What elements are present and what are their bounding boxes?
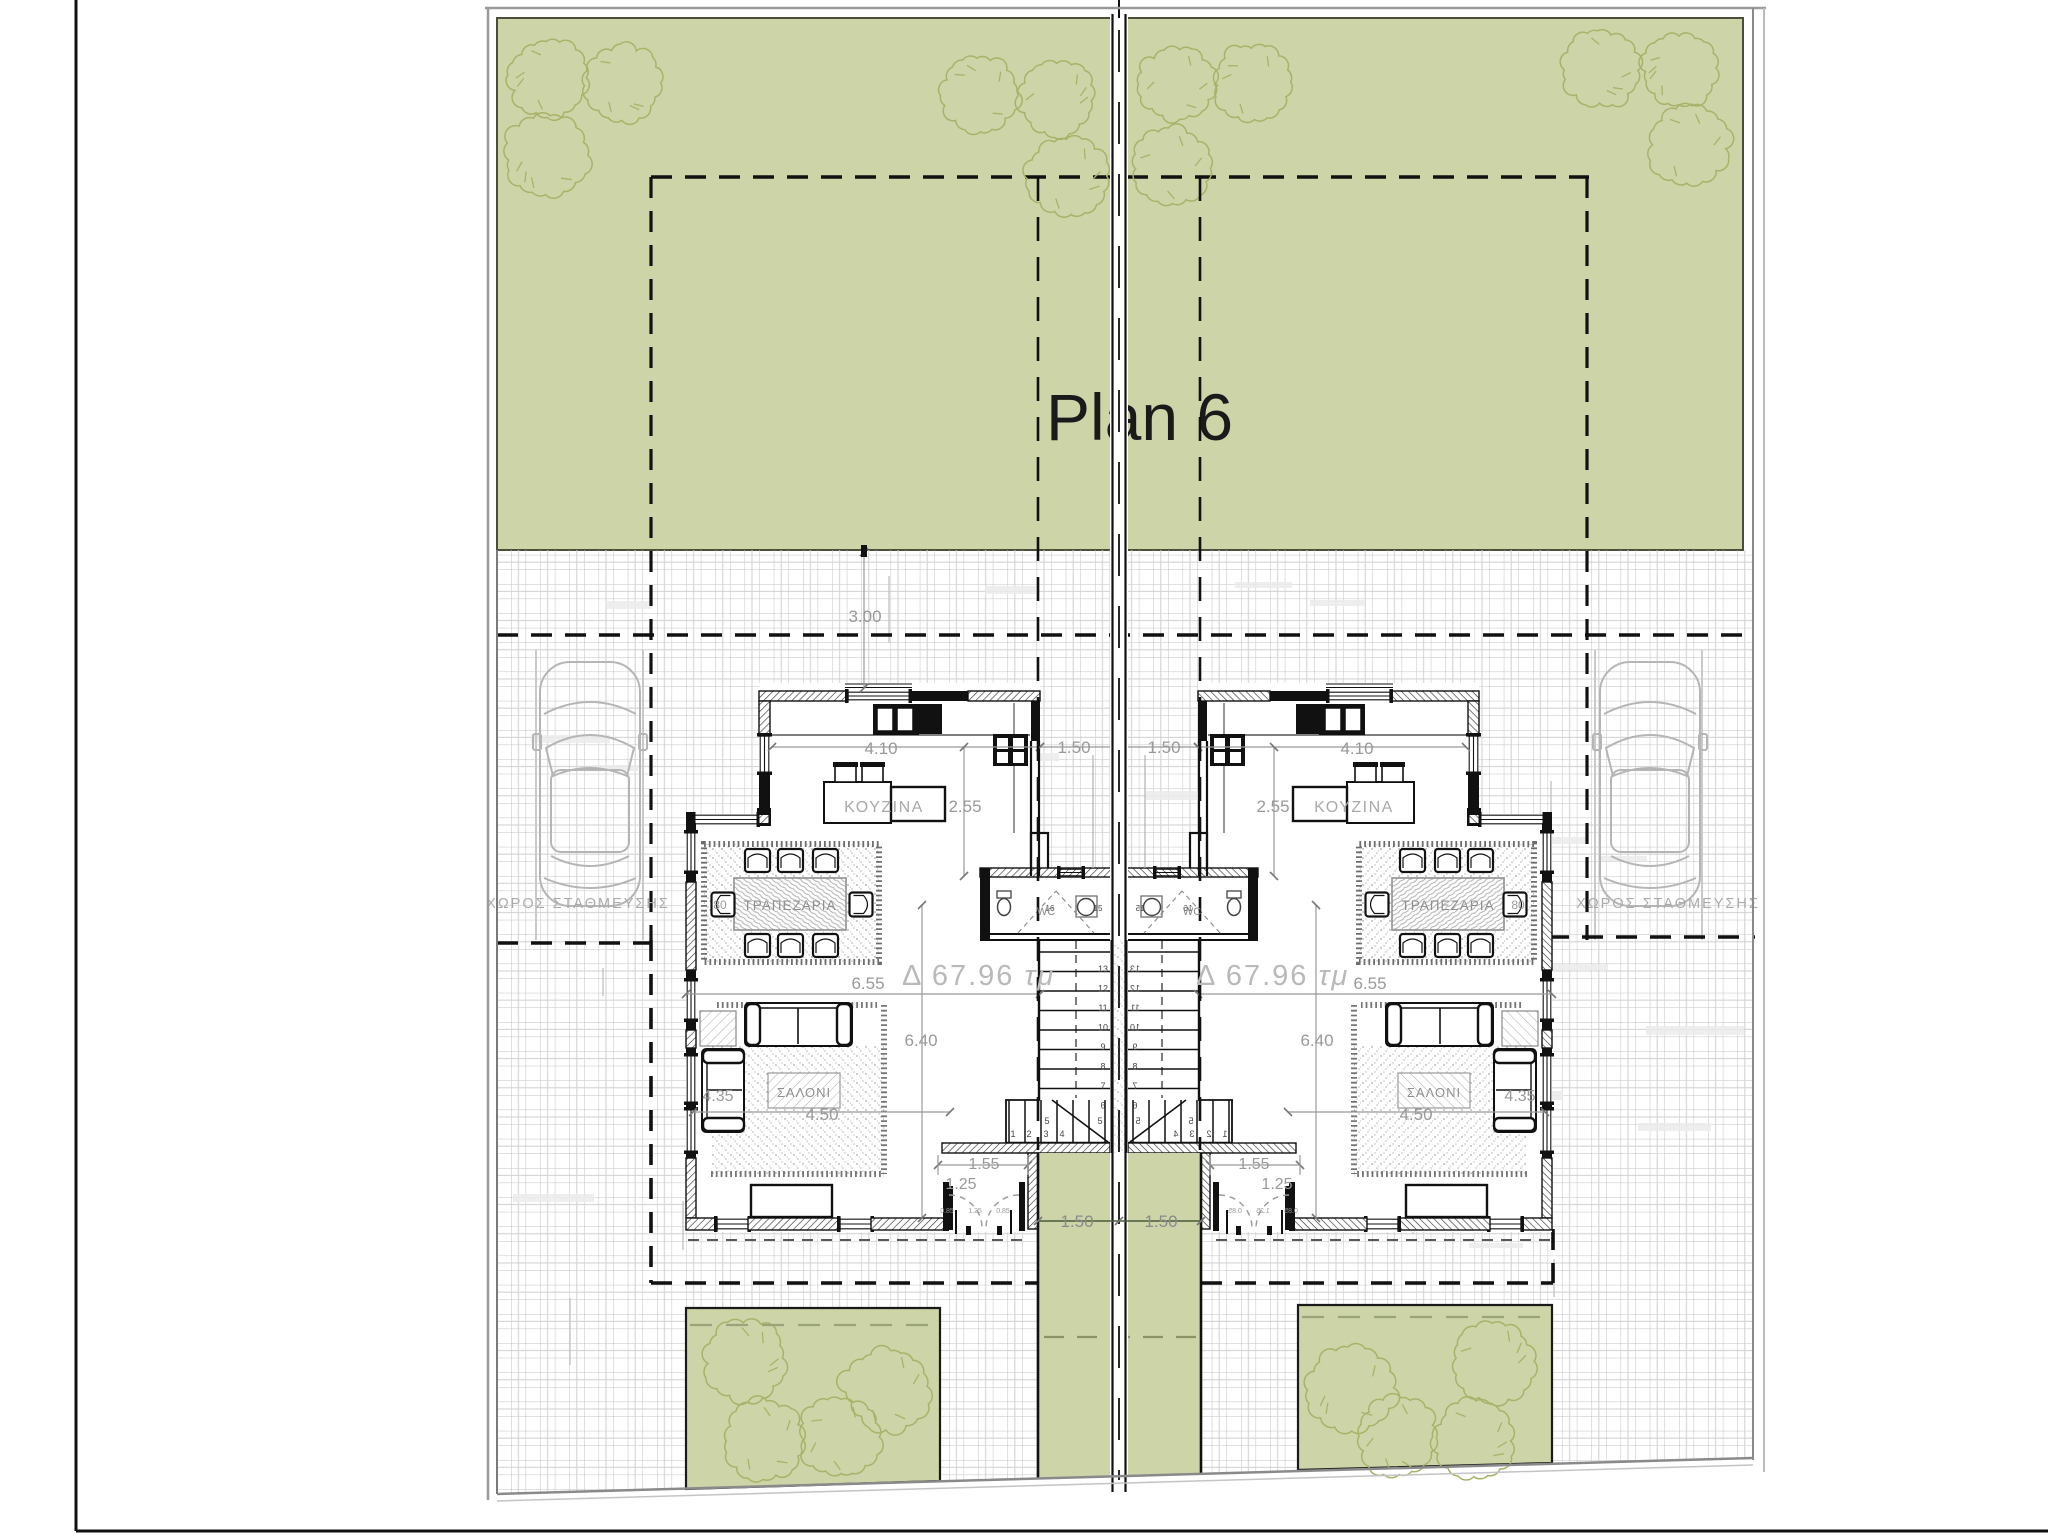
svg-text:13: 13	[1098, 964, 1108, 974]
svg-text:2.55: 2.55	[948, 797, 981, 816]
svg-text:8: 8	[1132, 1062, 1137, 1072]
svg-text:1.25: 1.25	[1256, 1208, 1270, 1215]
svg-text:6.40: 6.40	[1300, 1031, 1333, 1050]
svg-text:1.55: 1.55	[968, 1156, 999, 1173]
svg-text:WC: WC	[1183, 906, 1201, 918]
svg-text:4.35: 4.35	[702, 1088, 733, 1105]
svg-text:5: 5	[1097, 1116, 1102, 1126]
svg-text:ΤΡΑΠΕΖΑΡΙΑ: ΤΡΑΠΕΖΑΡΙΑ	[1401, 898, 1494, 913]
svg-text:4: 4	[1173, 1129, 1178, 1139]
svg-text:11: 11	[1130, 1003, 1139, 1013]
svg-text:80: 80	[1511, 898, 1525, 912]
svg-text:1.50: 1.50	[1060, 1212, 1093, 1231]
svg-text:Δ 67.96 τμ: Δ 67.96 τμ	[1196, 960, 1349, 992]
svg-text:3: 3	[1189, 1129, 1194, 1139]
svg-text:ΣΑΛΟΝΙ: ΣΑΛΟΝΙ	[777, 1085, 831, 1100]
svg-text:1.25: 1.25	[968, 1208, 982, 1215]
svg-text:4.10: 4.10	[864, 739, 897, 758]
svg-text:ΧΩΡΟΣ ΣΤΑΘΜΕΥΣΗΣ: ΧΩΡΟΣ ΣΤΑΘΜΕΥΣΗΣ	[1576, 896, 1760, 912]
svg-text:12: 12	[1130, 984, 1140, 994]
svg-text:7: 7	[1100, 1081, 1105, 1091]
svg-text:1: 1	[1222, 1129, 1227, 1139]
svg-text:0.85: 0.85	[1284, 1208, 1298, 1215]
svg-text:5: 5	[1188, 1116, 1193, 1126]
svg-text:9: 9	[1132, 1042, 1137, 1052]
svg-text:4.50: 4.50	[1399, 1105, 1432, 1124]
svg-text:15: 15	[1094, 904, 1103, 913]
svg-text:6.55: 6.55	[851, 974, 884, 993]
svg-text:12: 12	[1098, 984, 1108, 994]
svg-text:8: 8	[1100, 1062, 1105, 1072]
svg-text:1.50: 1.50	[1057, 738, 1090, 757]
svg-text:ΚΟΥΖΙΝΑ: ΚΟΥΖΙΝΑ	[1314, 799, 1394, 816]
svg-text:1.25: 1.25	[945, 1176, 976, 1193]
svg-text:WC: WC	[1037, 906, 1055, 918]
svg-text:4.35: 4.35	[1504, 1088, 1535, 1105]
svg-text:2.55: 2.55	[1256, 797, 1289, 816]
svg-text:ΤΡΑΠΕΖΑΡΙΑ: ΤΡΑΠΕΖΑΡΙΑ	[743, 898, 836, 913]
svg-text:10: 10	[1130, 1023, 1140, 1033]
svg-text:3: 3	[1043, 1129, 1048, 1139]
svg-text:5: 5	[1135, 1116, 1140, 1126]
svg-text:1.25: 1.25	[1261, 1176, 1292, 1193]
svg-text:4.10: 4.10	[1340, 739, 1373, 758]
svg-text:ΚΟΥΖΙΝΑ: ΚΟΥΖΙΝΑ	[844, 799, 924, 816]
svg-text:0.85: 0.85	[1228, 1208, 1242, 1215]
svg-text:5: 5	[1044, 1116, 1049, 1126]
svg-text:6.55: 6.55	[1353, 974, 1386, 993]
svg-text:9: 9	[1100, 1042, 1105, 1052]
svg-text:13: 13	[1130, 964, 1140, 974]
svg-text:3.00: 3.00	[848, 607, 881, 626]
svg-text:7: 7	[1132, 1081, 1137, 1091]
svg-text:0.85: 0.85	[996, 1208, 1010, 1215]
svg-text:Plan 6: Plan 6	[1046, 380, 1233, 454]
svg-text:11: 11	[1098, 1003, 1107, 1013]
svg-text:1.55: 1.55	[1238, 1156, 1269, 1173]
svg-text:Δ 67.96 τμ: Δ 67.96 τμ	[902, 960, 1055, 992]
svg-text:ΣΑΛΟΝΙ: ΣΑΛΟΝΙ	[1407, 1085, 1461, 1100]
svg-text:4.50: 4.50	[805, 1105, 838, 1124]
svg-text:1: 1	[1010, 1129, 1015, 1139]
svg-text:6.40: 6.40	[904, 1031, 937, 1050]
svg-text:ΧΩΡΟΣ ΣΤΑΘΜΕΥΣΗΣ: ΧΩΡΟΣ ΣΤΑΘΜΕΥΣΗΣ	[486, 896, 670, 912]
svg-text:15: 15	[1135, 904, 1144, 913]
svg-text:80: 80	[713, 898, 727, 912]
svg-text:1.50: 1.50	[1147, 738, 1180, 757]
svg-text:0.85: 0.85	[940, 1208, 954, 1215]
svg-text:2: 2	[1026, 1129, 1031, 1139]
svg-text:2: 2	[1206, 1129, 1211, 1139]
svg-text:1.50: 1.50	[1144, 1212, 1177, 1231]
svg-text:10: 10	[1098, 1023, 1108, 1033]
svg-text:4: 4	[1059, 1129, 1064, 1139]
